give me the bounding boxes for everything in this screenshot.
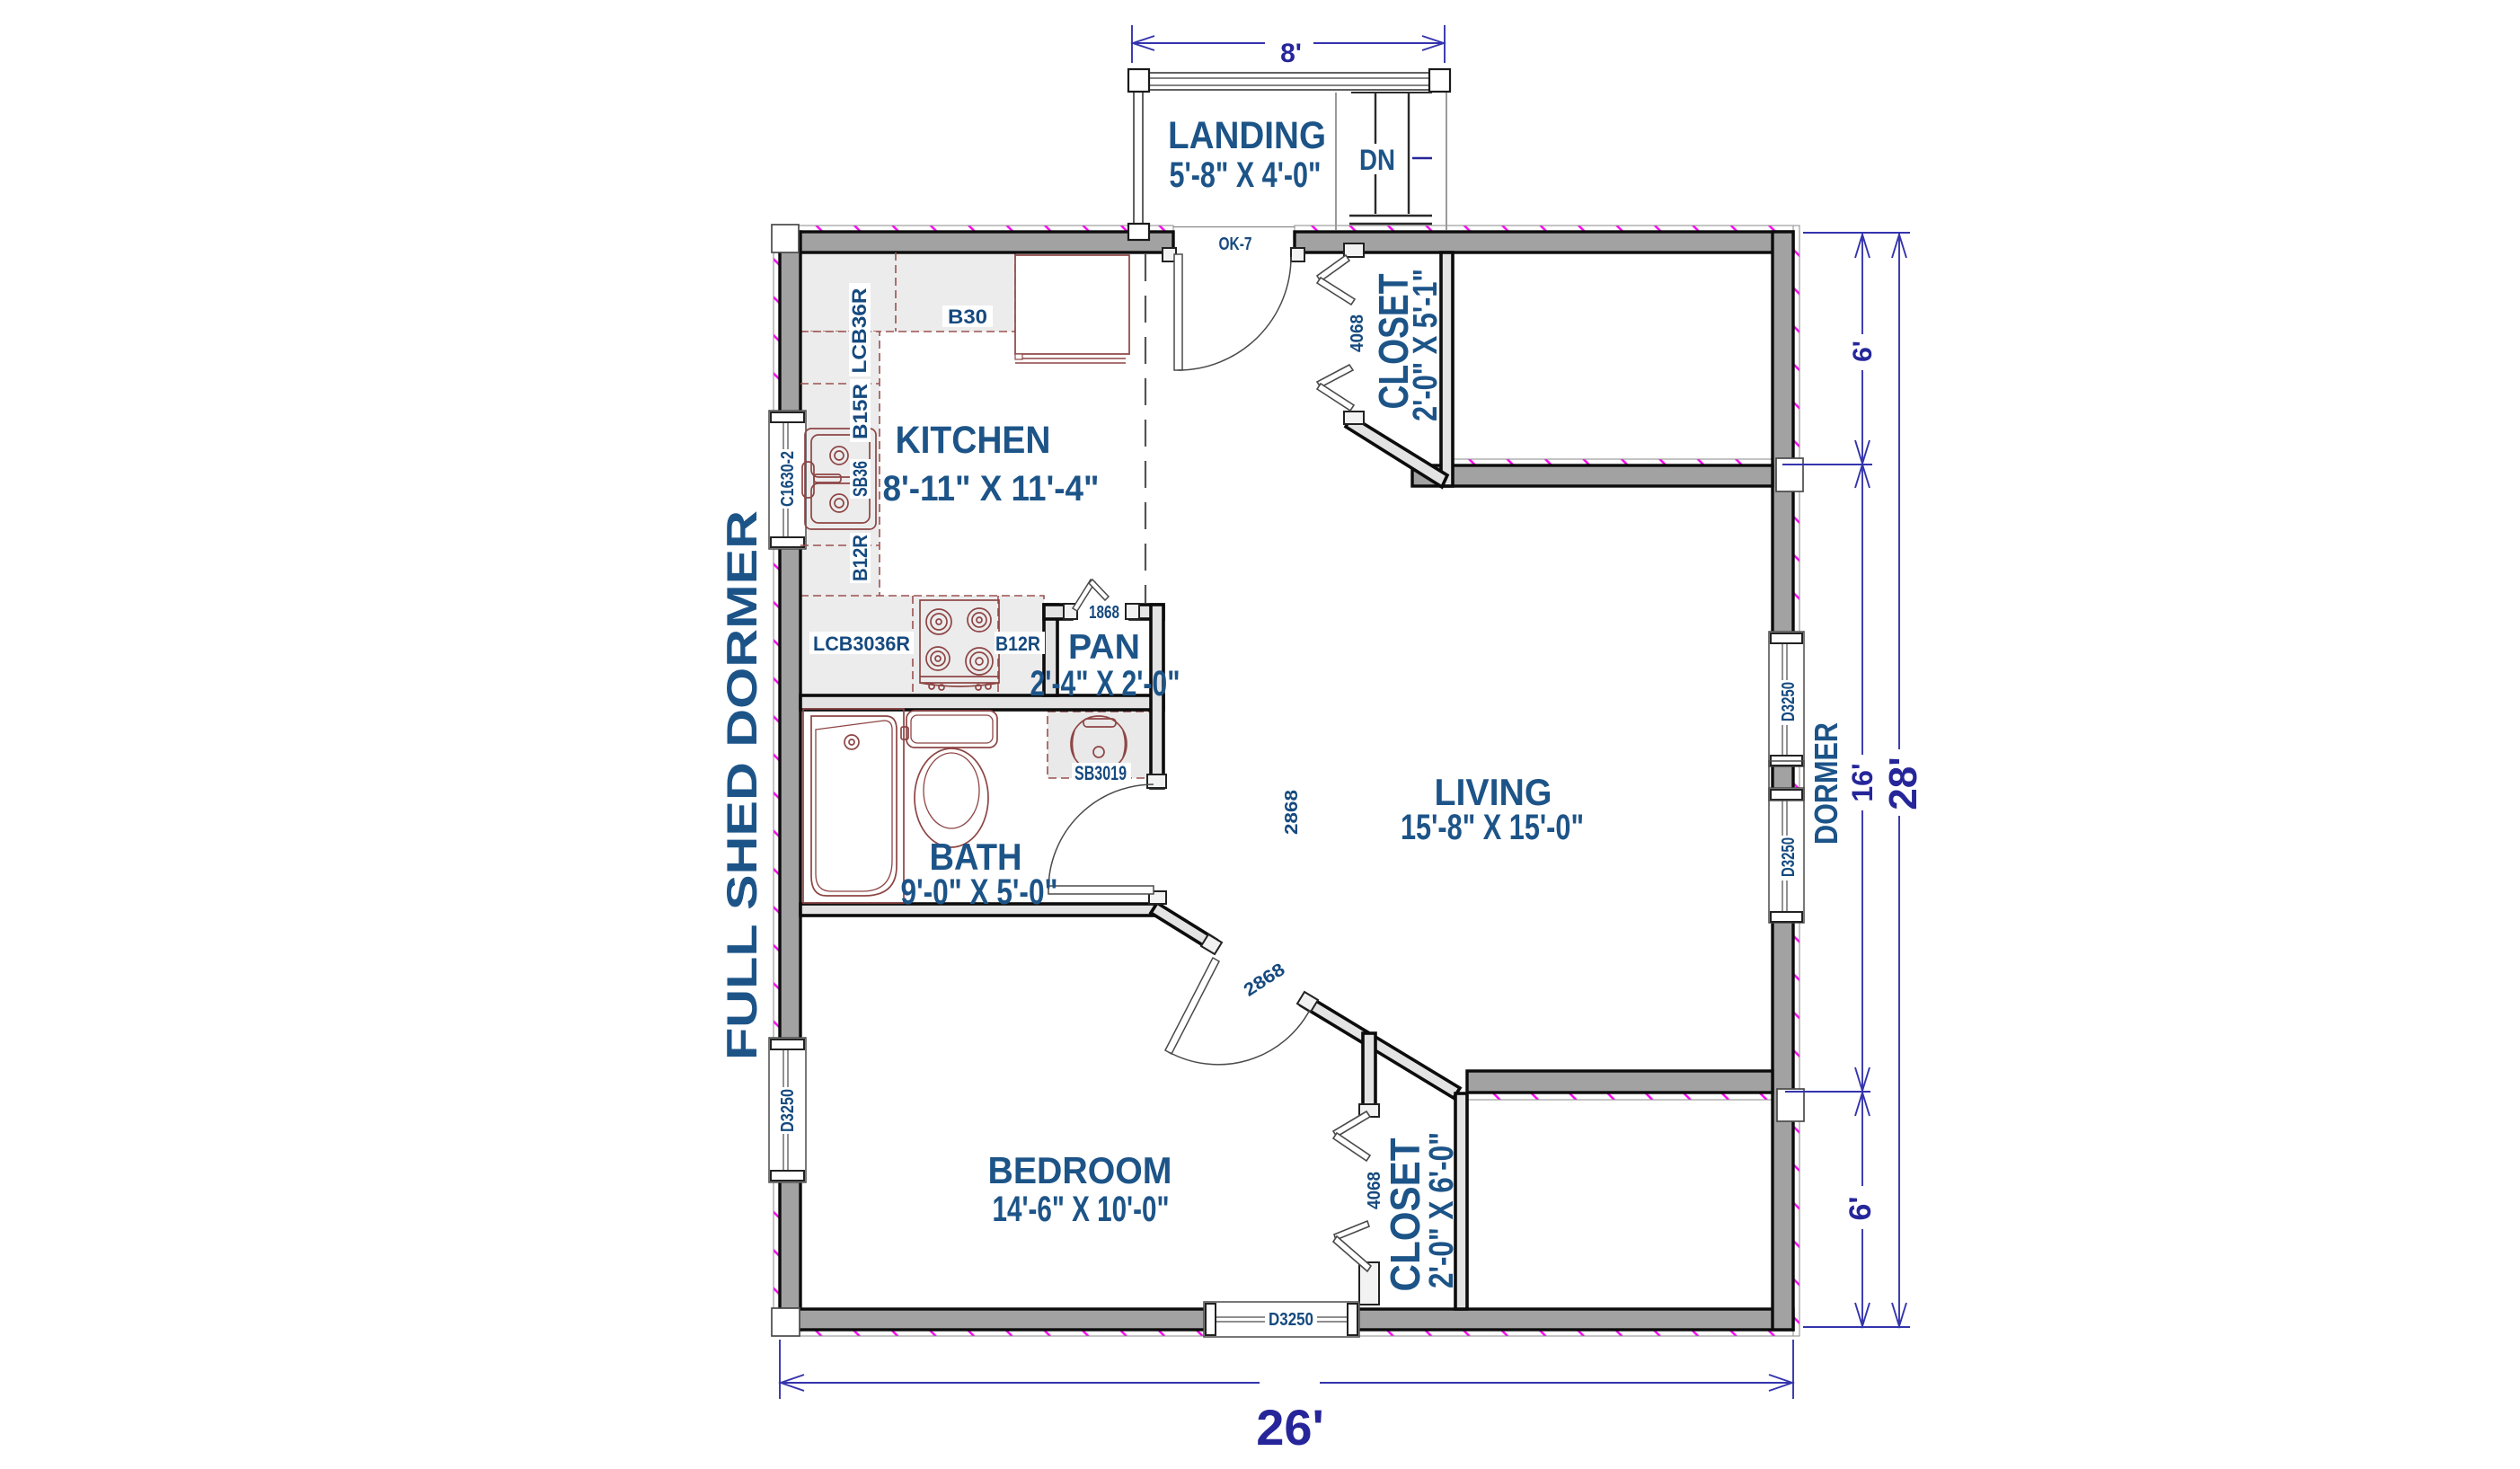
svg-text:D3250: D3250 — [1269, 1310, 1313, 1330]
svg-text:SB36: SB36 — [849, 461, 871, 497]
svg-text:PAN: PAN — [1068, 628, 1140, 667]
svg-text:OK-7: OK-7 — [1219, 235, 1252, 254]
svg-text:KITCHEN: KITCHEN — [896, 419, 1051, 462]
svg-text:LCB3036R: LCB3036R — [813, 633, 910, 655]
svg-text:CLOSET: CLOSET — [1382, 1138, 1428, 1292]
svg-text:BEDROOM: BEDROOM — [988, 1149, 1172, 1191]
svg-text:6': 6' — [1844, 1197, 1878, 1221]
svg-text:6': 6' — [1848, 341, 1878, 362]
svg-text:2'-0" X 5'-1": 2'-0" X 5'-1" — [1407, 269, 1445, 421]
svg-text:9'-0" X 5'-0": 9'-0" X 5'-0" — [901, 872, 1058, 912]
svg-text:D3250: D3250 — [778, 1089, 798, 1132]
svg-text:4068: 4068 — [1365, 1172, 1384, 1209]
svg-text:2'-0" X 6'-0": 2'-0" X 6'-0" — [1423, 1132, 1461, 1288]
svg-text:LCB36R: LCB36R — [848, 288, 871, 373]
svg-text:D3250: D3250 — [1779, 682, 1799, 721]
svg-text:B15R: B15R — [849, 384, 871, 439]
svg-text:B30: B30 — [948, 305, 987, 328]
svg-text:2868: 2868 — [1282, 790, 1302, 835]
svg-text:1868: 1868 — [1089, 603, 1119, 623]
svg-text:LANDING: LANDING — [1168, 114, 1326, 157]
svg-text:16': 16' — [1846, 763, 1879, 801]
svg-text:C1630-2: C1630-2 — [778, 451, 798, 507]
svg-text:14'-6" X 10'-0": 14'-6" X 10'-0" — [993, 1190, 1170, 1229]
svg-text:SB3019: SB3019 — [1074, 762, 1127, 784]
svg-text:8'-11" X 11'-4": 8'-11" X 11'-4" — [883, 469, 1100, 509]
svg-text:28': 28' — [1881, 757, 1925, 810]
svg-text:BATH: BATH — [930, 836, 1022, 878]
svg-text:D3250: D3250 — [1779, 837, 1799, 877]
svg-text:B12R: B12R — [849, 535, 871, 581]
svg-text:4068: 4068 — [1348, 314, 1367, 352]
svg-text:DORMER: DORMER — [1808, 722, 1844, 845]
svg-text:LIVING: LIVING — [1435, 771, 1552, 813]
svg-text:2'-4" X 2'-0": 2'-4" X 2'-0" — [1030, 664, 1180, 704]
svg-text:DN: DN — [1359, 144, 1395, 176]
svg-text:8': 8' — [1280, 39, 1302, 68]
svg-text:B12R: B12R — [995, 633, 1040, 655]
svg-text:FULL SHED DORMER: FULL SHED DORMER — [718, 510, 765, 1060]
svg-text:26': 26' — [1256, 1399, 1324, 1456]
svg-text:5'-8" X 4'-0": 5'-8" X 4'-0" — [1170, 155, 1322, 195]
svg-text:15'-8" X 15'-0": 15'-8" X 15'-0" — [1401, 808, 1584, 847]
